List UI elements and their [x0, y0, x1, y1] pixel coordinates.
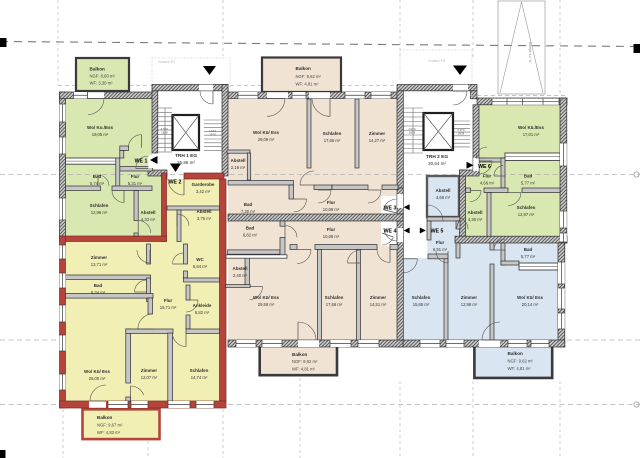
svg-text:19,05 m²: 19,05 m² [92, 132, 109, 137]
svg-text:18/28: 18/28 [209, 132, 216, 136]
svg-text:4 STG: 4 STG [161, 127, 169, 131]
svg-text:TRH 1 EG: TRH 1 EG [175, 153, 197, 159]
svg-text:WE 3: WE 3 [384, 206, 397, 212]
svg-text:Zimmer: Zimmer [141, 368, 158, 373]
svg-text:14,74 m²: 14,74 m² [191, 375, 208, 380]
svg-text:WF: 4,81 m²: WF: 4,81 m² [508, 366, 532, 371]
svg-text:NGF: 9,62 m²: NGF: 9,62 m² [292, 359, 318, 364]
svg-text:3,42 m²: 3,42 m² [196, 189, 211, 194]
svg-text:10,69 m²: 10,69 m² [323, 207, 340, 212]
svg-text:15,71 m²: 15,71 m² [160, 305, 177, 310]
svg-text:2,19 m²: 2,19 m² [231, 165, 246, 170]
svg-text:Bad: Bad [93, 174, 102, 179]
svg-text:Wo/ Kü./Ess: Wo/ Kü./Ess [518, 125, 544, 130]
svg-text:Wo/ Kü/ Ess: Wo/ Kü/ Ess [84, 369, 110, 374]
svg-text:4 STG: 4 STG [408, 127, 416, 131]
svg-text:5,74 m²: 5,74 m² [90, 181, 105, 186]
svg-text:Wo/ Ko./Ess: Wo/ Ko./Ess [87, 125, 113, 130]
svg-text:4 STG: 4 STG [457, 128, 465, 132]
svg-text:Zimmer: Zimmer [370, 295, 387, 300]
svg-text:NGF: 9,67 m²: NGF: 9,67 m² [97, 423, 123, 428]
svg-text:18/28: 18/28 [161, 130, 168, 134]
svg-text:NGF: 8,60 m²: NGF: 8,60 m² [90, 74, 116, 79]
svg-text:12,98 m²: 12,98 m² [461, 302, 478, 307]
svg-text:Balkon: Balkon [296, 66, 312, 71]
svg-text:WE 2: WE 2 [169, 180, 182, 186]
svg-text:18/28: 18/28 [409, 130, 416, 134]
svg-text:WF: 4,81 m²: WF: 4,81 m² [296, 82, 320, 87]
svg-text:5,31 m²: 5,31 m² [128, 181, 143, 186]
svg-text:Wo/ Kü/ Ess: Wo/ Kü/ Ess [253, 295, 279, 300]
svg-text:Flur: Flur [327, 200, 336, 205]
svg-text:Schlafen: Schlafen [90, 203, 109, 208]
svg-text:5,77 m²: 5,77 m² [521, 254, 536, 259]
svg-text:10,68 m²: 10,68 m² [323, 234, 340, 239]
svg-text:Balkon: Balkon [97, 415, 113, 420]
svg-text:17,01 m²: 17,01 m² [523, 132, 540, 137]
svg-text:NGF: 9,62 m²: NGF: 9,62 m² [296, 74, 322, 79]
svg-text:14,27 m²: 14,27 m² [369, 138, 386, 143]
svg-text:6,82 m²: 6,82 m² [195, 310, 210, 315]
svg-text:WC: WC [196, 257, 204, 262]
svg-text:2,40 m²: 2,40 m² [233, 273, 248, 278]
svg-text:Flur: Flur [131, 174, 140, 179]
svg-text:Vordach EG: Vordach EG [428, 59, 446, 63]
svg-text:29,59 m²: 29,59 m² [258, 302, 275, 307]
svg-text:30,64 m²: 30,64 m² [428, 161, 446, 166]
svg-text:Flur: Flur [327, 227, 336, 232]
svg-text:WF: 3,30 m²: WF: 3,30 m² [90, 81, 114, 86]
svg-text:Bad: Bad [524, 174, 533, 179]
svg-text:29,09 m²: 29,09 m² [258, 137, 275, 142]
svg-text:12,97 m²: 12,97 m² [518, 212, 535, 217]
svg-text:4,66 m²: 4,66 m² [480, 181, 495, 186]
svg-text:Zimmer: Zimmer [461, 295, 478, 300]
svg-text:WF: 4,83 m²: WF: 4,83 m² [97, 430, 121, 435]
svg-text:Wo/ Kü/ Ess: Wo/ Kü/ Ess [253, 130, 279, 135]
svg-text:Abstell: Abstell [196, 209, 211, 214]
svg-text:Balkon: Balkon [292, 352, 308, 357]
svg-text:6,82 m²: 6,82 m² [243, 233, 258, 238]
svg-text:15,65 m²: 15,65 m² [413, 302, 430, 307]
svg-text:13,71 m²: 13,71 m² [91, 262, 108, 267]
svg-text:4,68 m²: 4,68 m² [436, 195, 451, 200]
svg-text:17,66 m²: 17,66 m² [324, 138, 341, 143]
svg-text:WF: 4,81 m²: WF: 4,81 m² [292, 367, 316, 372]
svg-text:Abstell: Abstell [435, 188, 450, 193]
svg-text:WE 5: WE 5 [431, 229, 444, 235]
svg-text:Zimmer: Zimmer [91, 255, 108, 260]
svg-text:Schlafen: Schlafen [190, 368, 209, 373]
svg-text:WE 6: WE 6 [478, 164, 491, 170]
svg-text:WE 4: WE 4 [384, 229, 397, 235]
svg-text:Abstell: Abstell [467, 210, 482, 215]
svg-text:Schlafen: Schlafen [412, 295, 431, 300]
svg-text:4,30 m²: 4,30 m² [468, 217, 483, 222]
svg-text:4,33 m²: 4,33 m² [141, 217, 156, 222]
svg-text:Ankleide: Ankleide [193, 303, 212, 308]
svg-text:Bad: Bad [524, 247, 533, 252]
svg-text:Abstell: Abstell [140, 210, 155, 215]
svg-text:5,77 m²: 5,77 m² [521, 181, 536, 186]
svg-text:7,30 m²: 7,30 m² [241, 209, 256, 214]
svg-text:4 STG: 4 STG [209, 129, 217, 133]
svg-text:Bad: Bad [244, 202, 253, 207]
svg-text:Bad: Bad [94, 283, 103, 288]
svg-text:WE 1: WE 1 [135, 159, 148, 165]
svg-text:Garderobe: Garderobe [192, 182, 215, 187]
svg-text:12,07 m²: 12,07 m² [141, 375, 158, 380]
svg-text:3,75 m²: 3,75 m² [197, 216, 212, 221]
svg-text:Zimmer: Zimmer [369, 131, 386, 136]
svg-text:12,96 m²: 12,96 m² [91, 210, 108, 215]
svg-text:20,14 m²: 20,14 m² [522, 302, 539, 307]
svg-text:17,66 m²: 17,66 m² [326, 302, 343, 307]
svg-text:14,51 m²: 14,51 m² [370, 302, 387, 307]
svg-text:Abstell: Abstell [230, 158, 245, 163]
svg-text:Wo/ Kü/ Ess: Wo/ Kü/ Ess [517, 295, 543, 300]
svg-text:5,84 m²: 5,84 m² [193, 264, 208, 269]
svg-text:Bad: Bad [246, 226, 255, 231]
svg-text:Flur: Flur [483, 174, 492, 179]
svg-text:25,00 m²: 25,00 m² [89, 376, 106, 381]
svg-text:8,34 m²: 8,34 m² [91, 290, 106, 295]
svg-text:Balkon: Balkon [90, 67, 106, 72]
svg-text:Flur: Flur [436, 240, 445, 245]
svg-text:6,91 m²: 6,91 m² [433, 247, 448, 252]
svg-text:Schlafen: Schlafen [325, 295, 344, 300]
svg-text:Vordach EG: Vordach EG [158, 60, 176, 64]
svg-text:NGF: 9,62 m²: NGF: 9,62 m² [508, 359, 534, 364]
svg-text:Schlafen: Schlafen [323, 131, 342, 136]
svg-text:Flur: Flur [164, 298, 173, 303]
svg-text:Schlafen: Schlafen [517, 205, 536, 210]
svg-text:Balkon: Balkon [508, 351, 524, 356]
svg-text:18/28: 18/28 [458, 131, 465, 135]
svg-text:TRH 2 EG: TRH 2 EG [426, 154, 448, 160]
svg-text:Rampe 6,0 %: Rampe 6,0 % [528, 42, 532, 63]
svg-text:Abstell: Abstell [232, 266, 247, 271]
